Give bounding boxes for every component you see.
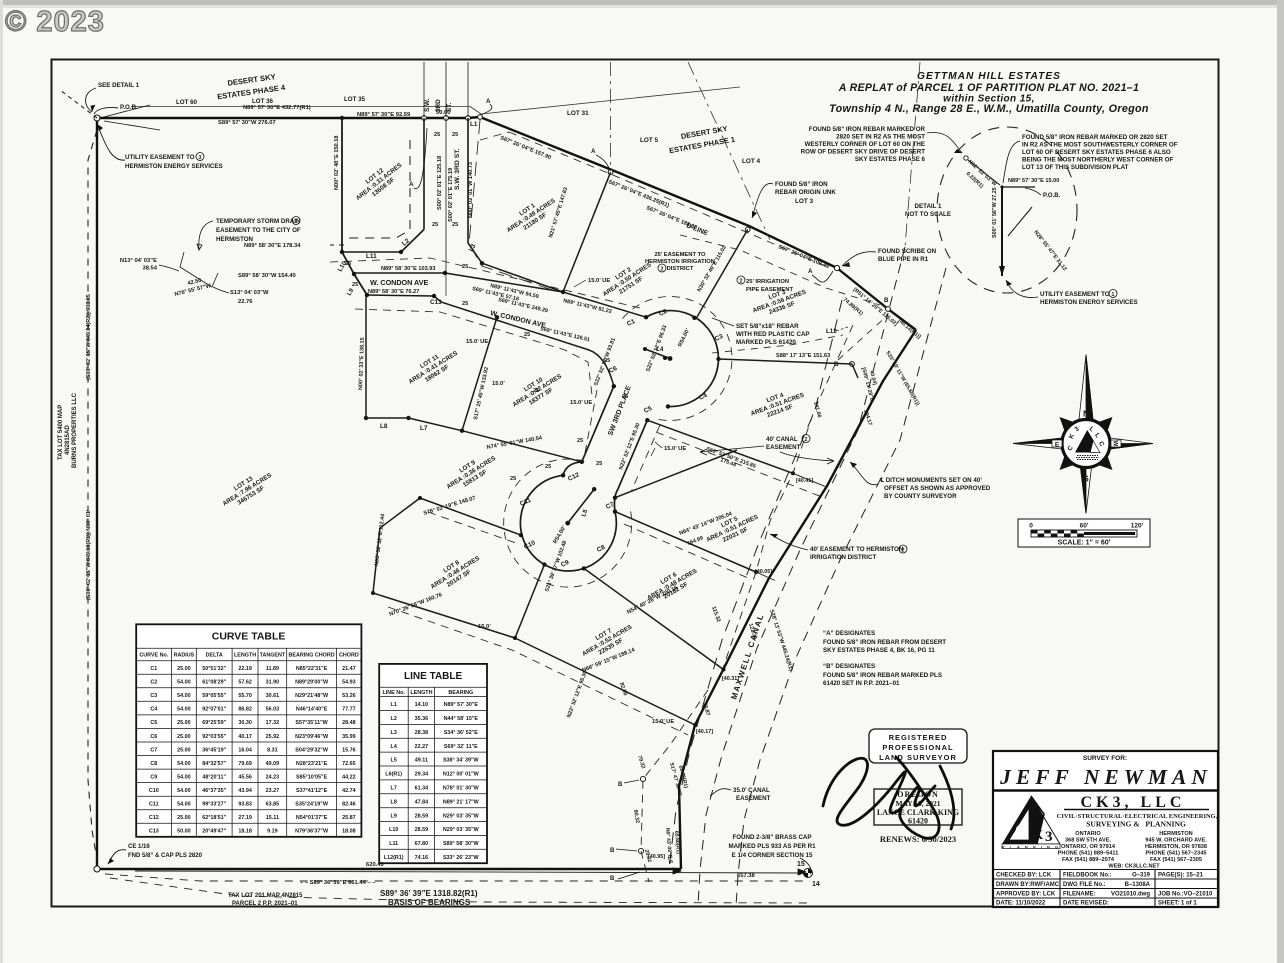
svg-text:REGISTERED: REGISTERED <box>889 733 948 742</box>
svg-text:28.59: 28.59 <box>415 827 429 833</box>
svg-text:59°05'55": 59°05'55" <box>202 693 226 699</box>
svg-text:2: 2 <box>805 437 808 443</box>
svg-text:[40.17]: [40.17] <box>696 729 713 735</box>
svg-text:UTILITY EASEMENT TO: UTILITY EASEMENT TO <box>1040 291 1110 298</box>
svg-text:FIELDBOOK No.:: FIELDBOOK No.: <box>1063 873 1112 879</box>
svg-text:FILENAME:: FILENAME: <box>1063 892 1096 898</box>
svg-text:LOT 31: LOT 31 <box>567 110 589 117</box>
svg-text:EASEMENT: EASEMENT <box>736 795 771 802</box>
svg-text:BEARING: BEARING <box>448 690 473 696</box>
svg-text:Township 4 N., Range 28 E: Township 4 N., Range 28 E., W.M., Umatil… <box>829 103 1149 115</box>
svg-text:CHECKED BY: LCK: CHECKED BY: LCK <box>996 873 1052 879</box>
svg-text:9.19: 9.19 <box>267 829 278 835</box>
svg-text:N89° 58’ 30”E 178.34: N89° 58’ 30”E 178.34 <box>244 243 301 249</box>
svg-text:FOUND 5/8” IRON REBAR MARK: FOUND 5/8” IRON REBAR MARKED OR <box>809 126 926 133</box>
svg-text:31.90: 31.90 <box>266 680 280 686</box>
svg-text:25: 25 <box>462 264 468 270</box>
svg-text:LINE TABLE: LINE TABLE <box>404 671 462 682</box>
svg-text:N29° 03' 35"W: N29° 03' 35"W <box>443 827 480 833</box>
svg-text:15.0’: 15.0’ <box>492 381 505 387</box>
svg-text:82.46: 82.46 <box>342 802 356 808</box>
svg-text:DISTRICT: DISTRICT <box>667 266 694 272</box>
svg-text:86.82: 86.82 <box>238 707 252 713</box>
svg-text:LOT 13 OF THIS SUBDIVISION: LOT 13 OF THIS SUBDIVISION PLAT <box>1022 164 1129 171</box>
svg-text:WEB: CK3LLC.NET: WEB: CK3LLC.NET <box>1108 864 1160 870</box>
svg-text:28.38: 28.38 <box>415 730 429 736</box>
svg-text:PROFESSIONAL: PROFESSIONAL <box>882 743 953 752</box>
svg-text:54.00: 54.00 <box>177 761 191 767</box>
svg-text:FOUND 5/8” IRON REBAR MARK: FOUND 5/8” IRON REBAR MARKED OR 2820 SET <box>1022 134 1168 141</box>
svg-text:“A” DESIGNATES: “A” DESIGNATES <box>823 630 875 637</box>
svg-text:N: N <box>1083 409 1089 419</box>
svg-text:25.00: 25.00 <box>177 666 191 672</box>
svg-text:MARKED PLS 61420: MARKED PLS 61420 <box>736 339 796 346</box>
svg-text:REBAR ORIGIN UNK: REBAR ORIGIN UNK <box>775 189 836 196</box>
svg-text:27.19: 27.19 <box>238 815 252 821</box>
svg-text:S69° 32' 11"E: S69° 32' 11"E <box>444 744 478 750</box>
svg-text:N89° 21' 17"W: N89° 21' 17"W <box>443 799 480 805</box>
svg-text:49.09: 49.09 <box>266 761 280 767</box>
svg-text:25: 25 <box>462 301 468 307</box>
svg-text:L9: L9 <box>391 813 397 819</box>
svg-text:4N2815AD: 4N2815AD <box>65 425 71 455</box>
svg-text:N00° 02’ 48”E 150.18: N00° 02’ 48”E 150.18 <box>334 136 340 191</box>
svg-text:DATE: 11/10/2022: DATE: 11/10/2022 <box>996 901 1046 907</box>
svg-text:B: B <box>884 297 889 304</box>
svg-text:S33° 26' 23"W: S33° 26' 23"W <box>443 855 480 861</box>
svg-text:S00° 02’ 01”E 175.19: S00° 02’ 01”E 175.19 <box>448 168 454 222</box>
svg-text:BY COUNTY SURVEYOR: BY COUNTY SURVEYOR <box>884 493 957 500</box>
svg-text:3: 3 <box>199 155 202 161</box>
svg-text:SEE DETAIL 1: SEE DETAIL 1 <box>98 82 140 89</box>
svg-text:LAND SURVEYOR: LAND SURVEYOR <box>879 753 957 762</box>
svg-text:DRAWN BY:RWF/AMC: DRAWN BY:RWF/AMC <box>996 882 1060 888</box>
svg-text:S00° 02’ 01”E 125.18: S00° 02’ 01”E 125.18 <box>437 156 443 210</box>
svg-text:3RD: 3RD <box>435 99 442 112</box>
svg-text:HERMISTON: HERMISTON <box>216 236 254 243</box>
svg-text:N79°36'37"W: N79°36'37"W <box>295 829 329 835</box>
svg-text:22.27: 22.27 <box>415 744 429 750</box>
svg-text:18.08: 18.08 <box>342 829 356 835</box>
svg-text:25: 25 <box>510 476 516 482</box>
svg-text:93.83: 93.83 <box>238 802 252 808</box>
svg-text:S13° 04’ 03”W: S13° 04’ 03”W <box>230 290 269 296</box>
svg-text:SKY ESTATES PHASE 6: SKY ESTATES PHASE 6 <box>855 156 926 163</box>
svg-text:54.93: 54.93 <box>342 680 356 686</box>
svg-text:30.61: 30.61 <box>266 693 280 699</box>
svg-text:HERMISTON IRRIGATION: HERMISTON IRRIGATION <box>645 259 715 265</box>
svg-text:LOT 36: LOT 36 <box>252 98 274 105</box>
svg-text:38.54: 38.54 <box>142 266 157 272</box>
svg-text:LOT 3: LOT 3 <box>795 198 814 205</box>
svg-text:B: B <box>618 782 623 788</box>
svg-text:N29° 03' 35"W: N29° 03' 35"W <box>443 813 480 819</box>
svg-text:HERMISTON ENERGY SERVICES: HERMISTON ENERGY SERVICES <box>1040 299 1138 306</box>
svg-text:15.11: 15.11 <box>266 815 279 821</box>
svg-text:48°20'11": 48°20'11" <box>202 774 226 780</box>
svg-text:945 W. ORCHARD AVE.: 945 W. ORCHARD AVE. <box>1145 838 1207 844</box>
svg-text:PIPE EASEMENT: PIPE EASEMENT <box>746 287 793 293</box>
svg-text:15.0’ UE: 15.0’ UE <box>570 400 592 406</box>
svg-text:46°37'35": 46°37'35" <box>202 788 226 794</box>
svg-text:P.O.B.: P.O.B. <box>120 104 138 111</box>
svg-text:56.03: 56.03 <box>266 707 280 713</box>
svg-text:N89° 57’ 30”E 432.77(R1): N89° 57’ 30”E 432.77(R1) <box>243 105 311 111</box>
svg-text:25: 25 <box>577 438 583 444</box>
svg-text:C8: C8 <box>150 761 157 767</box>
svg-text:A: A <box>591 148 596 155</box>
svg-text:92°07'01": 92°07'01" <box>202 707 226 713</box>
svg-text:57.62: 57.62 <box>238 680 252 686</box>
svg-text:L10: L10 <box>389 827 398 833</box>
svg-text:3: 3 <box>1045 829 1053 845</box>
svg-text:L8: L8 <box>380 423 388 430</box>
svg-text:8.31: 8.31 <box>267 747 278 753</box>
svg-text:L8: L8 <box>391 799 397 805</box>
svg-text:36°45'19": 36°45'19" <box>202 747 226 753</box>
svg-text:25: 25 <box>452 132 458 138</box>
svg-text:UTILITY EASEMENT TO: UTILITY EASEMENT TO <box>125 154 195 161</box>
svg-text:MARKED PLS 933 AS PER R1: MARKED PLS 933 AS PER R1 <box>728 843 816 850</box>
svg-text:44.22: 44.22 <box>342 774 356 780</box>
svg-text:E: E <box>1055 441 1060 448</box>
svg-text:54.00: 54.00 <box>177 788 191 794</box>
svg-text:S00° 01’ 56”W 27.25: S00° 01’ 56”W 27.25 <box>992 187 998 238</box>
svg-text:LOT 60 OF DESERT SKY ESTA: LOT 60 OF DESERT SKY ESTATES PHASE 6 ALS… <box>1022 149 1171 156</box>
svg-text:54.00: 54.00 <box>177 680 191 686</box>
svg-text:C3: C3 <box>150 693 157 699</box>
svg-text:LOT 5: LOT 5 <box>640 137 659 144</box>
svg-text:N54°01'37"E: N54°01'37"E <box>296 815 328 821</box>
svg-text:C4: C4 <box>150 707 157 713</box>
svg-text:657.38: 657.38 <box>737 873 756 879</box>
svg-text:2: 2 <box>661 267 664 273</box>
svg-text:W. CONDON AVE: W. CONDON AVE <box>370 278 429 287</box>
svg-text:25: 25 <box>352 282 358 288</box>
svg-text:18.18: 18.18 <box>238 829 252 835</box>
svg-text:LINE No.: LINE No. <box>382 690 405 696</box>
svg-text:25.00: 25.00 <box>177 734 191 740</box>
svg-text:L7: L7 <box>391 786 397 792</box>
svg-text:DETAIL 1: DETAIL 1 <box>915 203 942 210</box>
svg-text:ONTARIO: ONTARIO <box>1075 831 1101 837</box>
svg-text:LENGTH: LENGTH <box>234 653 256 659</box>
svg-text:620.49: 620.49 <box>366 862 385 868</box>
svg-text:22.76: 22.76 <box>238 299 253 305</box>
svg-text:25.00: 25.00 <box>177 747 191 753</box>
svg-text:77.77: 77.77 <box>342 707 356 713</box>
svg-text:42.74: 42.74 <box>342 788 356 794</box>
svg-text:LOT 35: LOT 35 <box>344 96 366 103</box>
svg-text:C12: C12 <box>149 815 159 821</box>
svg-text:SET 5/8”x18” REBAR: SET 5/8”x18” REBAR <box>736 323 799 330</box>
svg-text:25: 25 <box>432 222 438 228</box>
svg-text:SURVEYING & PLANNING: SURVEYING & PLANNING <box>1086 820 1186 829</box>
svg-text:61°08'29": 61°08'29" <box>202 680 226 686</box>
svg-text:72.65: 72.65 <box>342 761 356 767</box>
svg-text:PAGE(S): 15–21: PAGE(S): 15–21 <box>1158 873 1204 879</box>
svg-text:35.99: 35.99 <box>342 734 356 740</box>
svg-text:SCALE: 1" = 60': SCALE: 1" = 60' <box>1058 540 1111 547</box>
svg-text:WITH RED PLASTIC CAP: WITH RED PLASTIC CAP <box>736 331 810 338</box>
svg-text:FAX (541) 889–2074: FAX (541) 889–2074 <box>1062 857 1115 863</box>
svg-text:WESTERLY CORNER OF LOT 60: WESTERLY CORNER OF LOT 60 ON THE <box>805 141 925 148</box>
svg-text:L11: L11 <box>366 253 377 260</box>
svg-text:C9: C9 <box>150 774 157 780</box>
svg-text:17.32: 17.32 <box>266 720 280 726</box>
svg-text:N78° 01' 30"W: N78° 01' 30"W <box>443 786 480 792</box>
svg-text:PHONE (541) 567–2345: PHONE (541) 567–2345 <box>1146 851 1207 857</box>
svg-text:15.0’: 15.0’ <box>478 624 491 630</box>
svg-text:L7: L7 <box>420 425 428 432</box>
svg-text:2: 2 <box>740 279 743 285</box>
svg-text:40’ EASEMENT TO HERMISTON: 40’ EASEMENT TO HERMISTON <box>810 546 904 553</box>
svg-text:SURVEY FOR:: SURVEY FOR: <box>1083 755 1127 762</box>
svg-text:62°18'51": 62°18'51" <box>202 815 226 821</box>
svg-text:C2: C2 <box>150 680 157 686</box>
svg-text:O–319: O–319 <box>1132 873 1151 879</box>
svg-text:HERMISTON, OR 97838: HERMISTON, OR 97838 <box>1145 844 1207 850</box>
svg-text:EASEMENT: EASEMENT <box>766 444 801 451</box>
svg-text:69°25'59": 69°25'59" <box>202 720 226 726</box>
svg-text:15.0’ UE: 15.0’ UE <box>588 278 610 284</box>
svg-text:FAX (541) 567–2305: FAX (541) 567–2305 <box>1150 857 1202 863</box>
svg-text:B: B <box>610 848 615 854</box>
svg-text:25: 25 <box>545 464 551 470</box>
svg-text:S04°29'32"W: S04°29'32"W <box>295 747 329 753</box>
svg-text:84°32'57": 84°32'57" <box>202 761 226 767</box>
svg-text:S89° 58' 30"W: S89° 58' 30"W <box>443 841 480 847</box>
svg-text:FOUND 2-3/8” BRASS CAP: FOUND 2-3/8” BRASS CAP <box>732 834 811 841</box>
svg-text:LENGTH: LENGTH <box>410 690 432 696</box>
svg-text:TAX LOT 5400 MAP: TAX LOT 5400 MAP <box>58 405 64 460</box>
svg-text:N89° 57’ 30”E 92.59: N89° 57’ 30”E 92.59 <box>357 112 411 118</box>
svg-text:LOT 60: LOT 60 <box>176 99 198 106</box>
svg-text:(S00° 02’ 15”W 849.04(R2)) 903: (S00° 02’ 15”W 849.04(R2)) 903.05 <box>86 294 92 380</box>
svg-text:15.0’ UE: 15.0’ UE <box>652 719 674 725</box>
svg-text:L5: L5 <box>391 758 397 764</box>
svg-text:N89° 57' 30"E: N89° 57' 30"E <box>444 702 479 708</box>
svg-text:55.70: 55.70 <box>238 693 252 699</box>
svg-text:C1: C1 <box>150 666 157 672</box>
svg-text:L12: L12 <box>826 328 837 335</box>
svg-text:60': 60' <box>1080 523 1089 530</box>
svg-text:28.59: 28.59 <box>415 813 429 819</box>
svg-text:24.23: 24.23 <box>266 774 280 780</box>
svg-text:© 2023: © 2023 <box>5 6 105 38</box>
svg-text:S34° 36' 52"E: S34° 36' 52"E <box>444 730 479 736</box>
svg-text:K: K <box>1033 827 1044 842</box>
svg-text:N12° 00' 01"W: N12° 00' 01"W <box>443 772 480 778</box>
svg-text:DWG FILE No.:: DWG FILE No.: <box>1063 882 1106 888</box>
svg-text:120': 120' <box>1131 523 1144 530</box>
svg-text:HERMISTON ENERGY SERVICES: HERMISTON ENERGY SERVICES <box>125 163 223 170</box>
svg-text:25: 25 <box>434 132 440 138</box>
svg-text:C13: C13 <box>430 299 442 306</box>
svg-text:63.85: 63.85 <box>266 802 280 808</box>
svg-text:S.W.: S.W. <box>424 98 431 112</box>
svg-text:43.94: 43.94 <box>238 788 252 794</box>
svg-text:CURVE TABLE: CURVE TABLE <box>212 631 286 643</box>
svg-text:P L A N N I N G: P L A N N I N G <box>1002 844 1060 849</box>
svg-text:28.48: 28.48 <box>342 720 356 726</box>
svg-text:FOUND 5/8” IRON: FOUND 5/8” IRON <box>775 181 828 188</box>
svg-text:“B” DESIGNATES: “B” DESIGNATES <box>823 663 875 670</box>
svg-text:CE 1/16: CE 1/16 <box>128 844 150 850</box>
svg-text:35.36: 35.36 <box>415 716 429 722</box>
svg-text:A: A <box>409 181 414 188</box>
svg-text:N89°29'00"W: N89°29'00"W <box>295 680 329 686</box>
svg-text:W: W <box>1112 441 1118 447</box>
svg-text:[40.41]: [40.41] <box>796 478 813 484</box>
svg-text:N00° 02’ 01”W 140.73: N00° 02’ 01”W 140.73 <box>468 162 474 218</box>
svg-text:L1: L1 <box>391 702 397 708</box>
svg-text:P.O.B.: P.O.B. <box>1043 193 1061 199</box>
svg-text:A: A <box>808 268 813 275</box>
svg-text:L11: L11 <box>389 841 398 847</box>
svg-text:BURNS PROPERTIES LLC: BURNS PROPERTIES LLC <box>72 392 78 468</box>
svg-text:S88° 17’ 13”E 151.63: S88° 17’ 13”E 151.63 <box>776 353 830 359</box>
svg-text:JEFF NEWMAN: JEFF NEWMAN <box>999 765 1212 789</box>
svg-text:N29°21'48"W: N29°21'48"W <box>295 693 329 699</box>
svg-text:PARCEL 2 P.P. 2021–01: PARCEL 2 P.P. 2021–01 <box>232 901 298 907</box>
svg-text:DATE REVISED:: DATE REVISED: <box>1063 901 1109 907</box>
svg-text:S89° 36’ 39”E 1318.82(R1): S89° 36’ 39”E 1318.82(R1) <box>380 889 478 898</box>
svg-text:CK3, LLC: CK3, LLC <box>1081 794 1186 811</box>
svg-text:50°51'32": 50°51'32" <box>202 666 226 672</box>
svg-text:A REPLAT of PARCEL 1 OF: A REPLAT of PARCEL 1 OF PARTITION PLAT N… <box>838 82 1139 94</box>
svg-text:[40.05]: [40.05] <box>755 569 772 575</box>
svg-text:HERMISTON: HERMISTON <box>1159 831 1192 837</box>
svg-text:S89° 57’ 30”W 276.07: S89° 57’ 30”W 276.07 <box>218 120 276 126</box>
svg-text:25.00: 25.00 <box>177 815 191 821</box>
svg-text:L6(R1): L6(R1) <box>385 772 402 778</box>
svg-text:30.30: 30.30 <box>238 720 252 726</box>
svg-text:N85°22'31"E: N85°22'31"E <box>296 666 328 672</box>
svg-text:FOUND 5/8” IRON REBAR FROM: FOUND 5/8” IRON REBAR FROM DESERT <box>823 639 946 646</box>
svg-text:L12(R1): L12(R1) <box>384 855 404 861</box>
svg-text:C7: C7 <box>150 747 157 753</box>
svg-text:25.87: 25.87 <box>342 815 356 821</box>
svg-text:TANGENT: TANGENT <box>260 653 286 659</box>
svg-text:67.80: 67.80 <box>415 841 429 847</box>
svg-text:54.00: 54.00 <box>177 802 191 808</box>
svg-text:C6: C6 <box>150 734 157 740</box>
svg-text:14: 14 <box>812 881 820 888</box>
svg-text:74.16: 74.16 <box>415 855 429 861</box>
svg-text:5: 5 <box>295 219 298 225</box>
svg-text:47.84: 47.84 <box>415 799 429 805</box>
svg-text:C13: C13 <box>149 829 159 835</box>
svg-text:VO21010.dwg: VO21010.dwg <box>1111 892 1150 898</box>
svg-text:50.00: 50.00 <box>177 829 191 835</box>
svg-text:45.56: 45.56 <box>238 774 252 780</box>
svg-text:TAX LOT 201 MAP 4N2815: TAX LOT 201 MAP 4N2815 <box>228 893 303 899</box>
svg-text:B: B <box>610 876 615 882</box>
svg-text:C11: C11 <box>149 802 159 808</box>
svg-text:C10: C10 <box>149 788 159 794</box>
svg-text:FND 5/8” & CAP PLS 2820: FND 5/8” & CAP PLS 2820 <box>128 853 203 859</box>
svg-text:IN R2 AS THE MOST SOUTHWE: IN R2 AS THE MOST SOUTHWESTERLY CORNER O… <box>1022 142 1178 149</box>
svg-text:11.89: 11.89 <box>266 666 279 672</box>
svg-text:25’ EASEMENT TO: 25’ EASEMENT TO <box>654 252 706 258</box>
svg-text:2820 SET IN R2 AS THE MO: 2820 SET IN R2 AS THE MOST <box>836 134 925 141</box>
svg-text:99°33'27": 99°33'27" <box>202 802 226 808</box>
svg-text:L4: L4 <box>656 346 664 353</box>
svg-text:S57°35'11"W: S57°35'11"W <box>295 720 328 726</box>
svg-text:92°03'55": 92°03'55" <box>202 734 226 740</box>
svg-text:25’ IRRIGATION: 25’ IRRIGATION <box>746 279 789 285</box>
svg-text:23.27: 23.27 <box>266 788 280 794</box>
svg-text:53.26: 53.26 <box>342 693 356 699</box>
svg-text:54.00: 54.00 <box>177 693 191 699</box>
svg-text:SHEET: 1 of 1: SHEET: 1 of 1 <box>1158 901 1197 907</box>
svg-text:FOUND 5/8” IRON REBAR MARK: FOUND 5/8” IRON REBAR MARKED PLS <box>823 672 942 679</box>
svg-text:N28°23'21"E: N28°23'21"E <box>296 761 328 767</box>
svg-text:N89° 58’ 30”E 103.93: N89° 58’ 30”E 103.93 <box>381 266 436 272</box>
svg-text:(S00° 02’ 15”W 849.10(R1)) N00: (S00° 02’ 15”W 849.10(R1)) N00° 01’ <box>86 509 92 600</box>
svg-text:BEING THE MOST NORTHERLY W: BEING THE MOST NORTHERLY WEST CORNER OF <box>1022 157 1173 164</box>
svg-text:BASIS OF BEARINGS: BASIS OF BEARINGS <box>388 898 471 907</box>
svg-text:N13° 04’ 03”E: N13° 04’ 03”E <box>120 258 157 264</box>
svg-text:20°49'47": 20°49'47" <box>202 829 226 835</box>
svg-text:0: 0 <box>1029 523 1033 530</box>
svg-text:54.00: 54.00 <box>177 707 191 713</box>
svg-text:25.92: 25.92 <box>266 734 280 740</box>
svg-text:TEMPORARY STORM DRAIN: TEMPORARY STORM DRAIN <box>216 218 301 225</box>
svg-text:C: C <box>1015 821 1027 840</box>
svg-text:61420: 61420 <box>908 817 928 826</box>
svg-text:ROW OF DESERT SKY DRIVE O: ROW OF DESERT SKY DRIVE OF DESERT <box>801 149 926 156</box>
svg-text:ST.: ST. <box>446 103 453 112</box>
svg-text:79.69: 79.69 <box>238 761 252 767</box>
svg-text:35.0’ CANAL: 35.0’ CANAL <box>733 787 770 794</box>
svg-text:APPROVED BY: LCK: APPROVED BY: LCK <box>996 892 1056 898</box>
svg-text:S89° 58’ 30”W 154.40: S89° 58’ 30”W 154.40 <box>238 273 296 279</box>
svg-text:S38° 34' 39"W: S38° 34' 39"W <box>443 758 480 764</box>
svg-text:S85°10'05"E: S85°10'05"E <box>296 774 328 780</box>
svg-text:L4: L4 <box>391 744 397 750</box>
svg-text:℄ DITCH MONUMENTS SET ON: ℄ DITCH MONUMENTS SET ON 40’ <box>879 477 982 484</box>
svg-text:N23°09'46"W: N23°09'46"W <box>295 734 329 740</box>
svg-text:NOT TO SCALE: NOT TO SCALE <box>905 211 951 218</box>
svg-text:B: B <box>834 361 839 368</box>
svg-text:CHORD: CHORD <box>339 653 359 659</box>
svg-text:C5: C5 <box>150 720 157 726</box>
svg-text:368 SW 5TH AVE.: 368 SW 5TH AVE. <box>1065 838 1111 844</box>
svg-text:25.00: 25.00 <box>177 720 191 726</box>
svg-text:L3: L3 <box>391 730 397 736</box>
svg-text:– – S89° 36’ 39”E 661.44 – –: – – S89° 36’ 39”E 661.44 – – <box>300 880 376 886</box>
svg-text:FOUND SCRIBE ON: FOUND SCRIBE ON <box>878 248 937 255</box>
svg-text:15.76: 15.76 <box>342 747 356 753</box>
svg-text:L2: L2 <box>391 716 397 722</box>
svg-text:N89° 57’ 30”E 15.00: N89° 57’ 30”E 15.00 <box>1008 178 1059 184</box>
svg-text:16.04: 16.04 <box>238 747 252 753</box>
svg-text:RADIUS: RADIUS <box>174 653 195 659</box>
svg-text:IRRIGATION DISTRICT: IRRIGATION DISTRICT <box>810 554 876 561</box>
svg-text:14.10: 14.10 <box>415 702 429 708</box>
svg-text:54.00: 54.00 <box>177 774 191 780</box>
svg-text:29.34: 29.34 <box>415 772 429 778</box>
svg-text:EASEMENT TO THE CITY OF: EASEMENT TO THE CITY OF <box>216 227 301 234</box>
svg-text:N89° 58’ 30”E 76.27: N89° 58’ 30”E 76.27 <box>368 289 419 295</box>
svg-text:61420 SET IN P.P. 2021–01: 61420 SET IN P.P. 2021–01 <box>823 680 900 687</box>
svg-text:1: 1 <box>1112 292 1115 298</box>
svg-text:15.0’ UE: 15.0’ UE <box>466 339 488 345</box>
svg-text:40’ CANAL: 40’ CANAL <box>766 436 798 443</box>
svg-text:B–1308A: B–1308A <box>1125 882 1151 888</box>
